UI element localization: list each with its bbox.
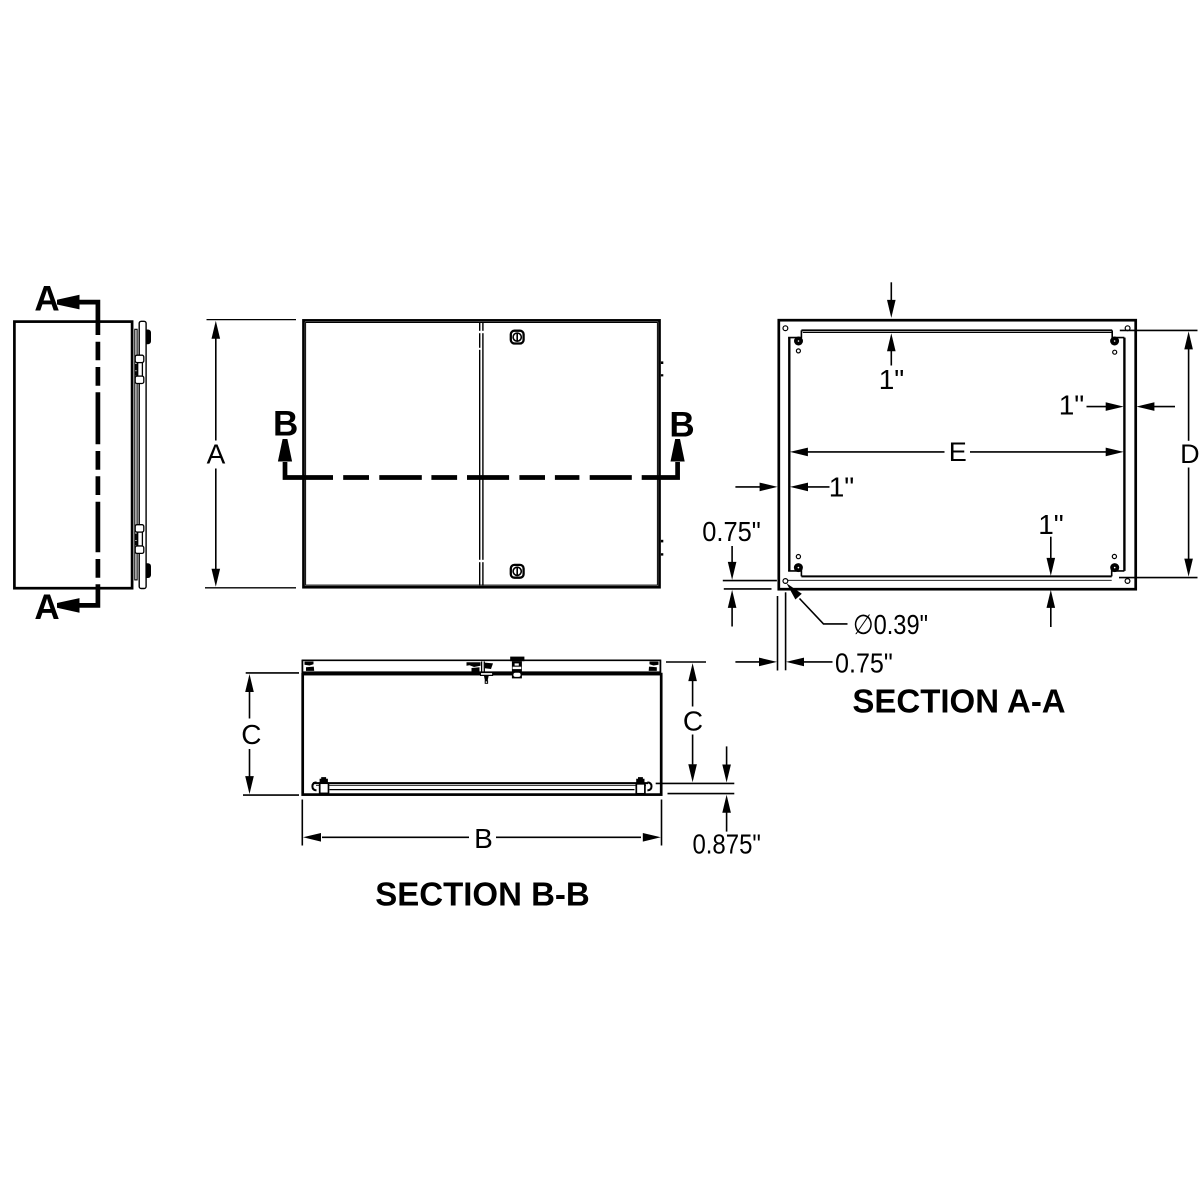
svg-text:C: C — [683, 706, 703, 737]
svg-text:D: D — [1180, 439, 1200, 469]
svg-text:C: C — [241, 719, 261, 750]
svg-text:0.75": 0.75" — [702, 516, 761, 547]
svg-text:A: A — [34, 588, 59, 627]
svg-text:B: B — [474, 823, 493, 854]
svg-text:SECTION B-B: SECTION B-B — [375, 875, 590, 912]
svg-text:B: B — [669, 405, 694, 444]
svg-text:A: A — [34, 279, 59, 318]
svg-text:A: A — [207, 439, 226, 470]
svg-text:E: E — [949, 437, 967, 467]
svg-text:0.875": 0.875" — [692, 829, 761, 860]
svg-text:B: B — [273, 404, 298, 443]
svg-text:SECTION A-A: SECTION A-A — [852, 683, 1065, 720]
svg-text:∅0.39": ∅0.39" — [853, 609, 928, 640]
svg-text:1": 1" — [1038, 509, 1064, 540]
svg-text:1": 1" — [829, 471, 855, 502]
svg-text:1": 1" — [1059, 390, 1085, 421]
svg-text:1": 1" — [879, 364, 905, 395]
svg-text:0.75": 0.75" — [835, 647, 893, 678]
